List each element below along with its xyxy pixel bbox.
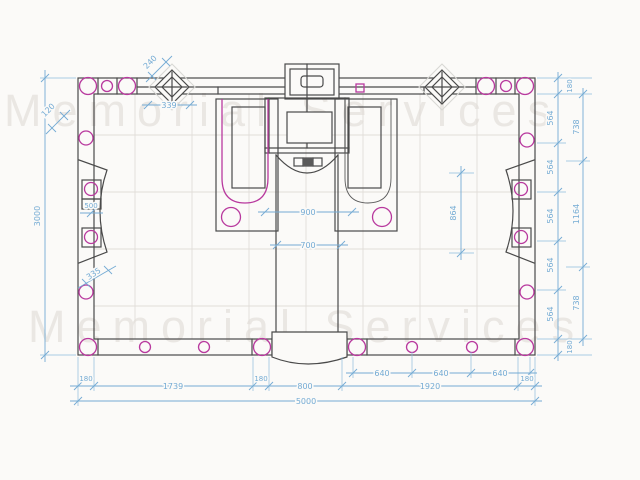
table <box>287 112 332 143</box>
dim-339: 339 <box>161 101 176 110</box>
dim-overall-height: 3000 <box>33 206 42 226</box>
dim-700: 700 <box>300 241 315 250</box>
dim-640c: 640 <box>492 369 507 378</box>
dim-bottom-800: 800 <box>297 382 312 391</box>
dim-640b: 640 <box>433 369 448 378</box>
dim-bottom-180c: 180 <box>520 375 533 383</box>
dim-right-564c: 564 <box>546 208 555 223</box>
cad-floor-plan: Memorial Services Memorial Services <box>0 0 640 480</box>
dim-bottom-1920: 1920 <box>420 382 440 391</box>
dim-right-180t: 180 <box>566 79 574 92</box>
dim-640a: 640 <box>374 369 389 378</box>
dim-overall-width: 5000 <box>296 397 316 406</box>
dim-500: 500 <box>84 202 97 210</box>
dim-right-738b: 738 <box>572 295 581 310</box>
floor-plan-drawing: Memorial Services Memorial Services <box>0 0 640 480</box>
dim-right-564d: 564 <box>546 257 555 272</box>
dim-900: 900 <box>300 208 315 217</box>
dim-864: 864 <box>449 205 458 220</box>
dim-right-180b: 180 <box>566 340 574 353</box>
wall-niche-right <box>506 160 534 263</box>
lectern <box>285 64 339 99</box>
dim-right-564a: 564 <box>546 110 555 125</box>
dim-right-1164: 1164 <box>572 204 581 224</box>
dim-right-564e: 564 <box>546 306 555 321</box>
dim-right-738a: 738 <box>572 119 581 134</box>
dim-right-564b: 564 <box>546 159 555 174</box>
dim-240: 240 <box>142 54 159 71</box>
dim-bottom-180a: 180 <box>79 375 92 383</box>
dim-bottom-180b: 180 <box>254 375 267 383</box>
watermark-top: Memorial Services <box>4 85 561 136</box>
dim-bottom-1739: 1739 <box>163 382 183 391</box>
entrance-vestibule <box>272 332 347 364</box>
